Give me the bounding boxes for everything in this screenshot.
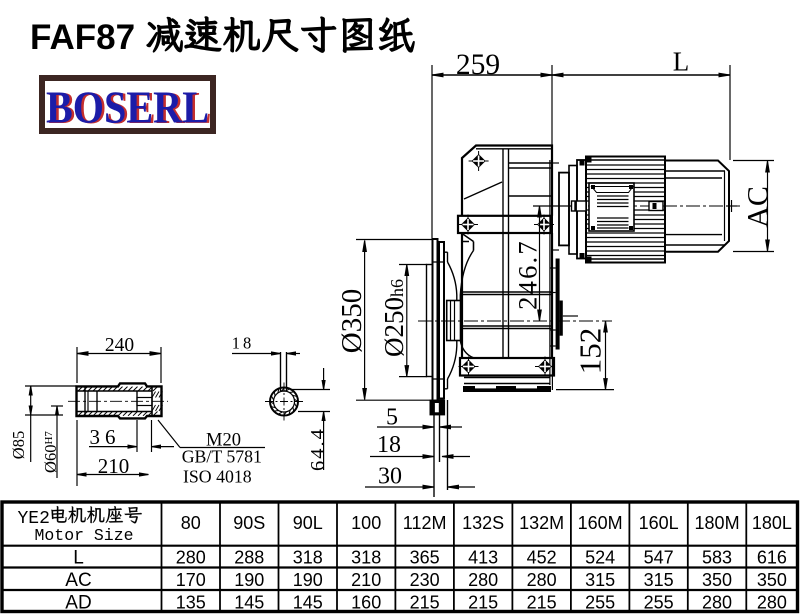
svg-text:80: 80 [181,513,201,533]
svg-text:AC: AC [65,570,91,591]
svg-text:90L: 90L [293,513,323,533]
svg-text:280: 280 [468,570,498,590]
svg-text:152: 152 [573,328,608,375]
svg-text:160M: 160M [578,513,623,533]
svg-text:64.4: 64.4 [307,427,329,471]
svg-text:Ø85: Ø85 [9,431,28,459]
svg-text:Ø350: Ø350 [336,289,368,353]
svg-text:145: 145 [293,593,323,613]
svg-text:255: 255 [585,593,615,613]
svg-text:L: L [673,47,690,77]
svg-text:132M: 132M [519,513,564,533]
svg-text:180L: 180L [752,513,792,533]
svg-text:135: 135 [176,593,206,613]
svg-text:FAF87: FAF87 [30,18,135,57]
svg-text:288: 288 [234,548,264,568]
svg-text:259: 259 [456,49,500,81]
svg-text:90S: 90S [233,513,265,533]
svg-text:145: 145 [234,593,264,613]
svg-text:318: 318 [293,548,323,568]
svg-text:30: 30 [378,464,402,490]
svg-text:170: 170 [176,570,206,590]
svg-text:210: 210 [98,454,130,478]
svg-text:210: 210 [351,570,381,590]
svg-text:BOSERL: BOSERL [46,83,209,133]
svg-text:AC: AC [742,186,775,228]
svg-text:GB/T 5781: GB/T 5781 [182,447,262,467]
svg-text:132S: 132S [462,513,504,533]
svg-text:215: 215 [410,593,440,613]
svg-text:AD: AD [65,593,91,614]
svg-text:215: 215 [468,593,498,613]
svg-text:L: L [73,548,84,569]
svg-text:190: 190 [234,570,264,590]
svg-text:ISO 4018: ISO 4018 [183,467,252,487]
svg-text:583: 583 [702,548,732,568]
svg-text:190: 190 [293,570,323,590]
svg-text:280: 280 [176,548,206,568]
svg-text:246.7: 246.7 [513,239,543,310]
svg-text:315: 315 [585,570,615,590]
svg-text:616: 616 [757,548,787,568]
svg-text:160: 160 [351,593,381,613]
svg-text:365: 365 [410,548,440,568]
svg-text:547: 547 [644,548,674,568]
svg-text:215: 215 [527,593,557,613]
svg-text:18: 18 [377,432,401,458]
svg-text:180M: 180M [695,513,740,533]
svg-text:318: 318 [351,548,381,568]
svg-text:18: 18 [232,334,255,353]
svg-text:280: 280 [527,570,557,590]
svg-text:5: 5 [386,405,398,431]
svg-text:452: 452 [527,548,557,568]
svg-text:36: 36 [90,425,121,449]
svg-text:Motor Size: Motor Size [34,526,133,545]
svg-text:112M: 112M [403,513,447,533]
svg-text:315: 315 [644,570,674,590]
svg-text:280: 280 [757,593,787,613]
svg-text:255: 255 [644,593,674,613]
svg-text:160L: 160L [639,513,679,533]
svg-text:350: 350 [757,570,787,590]
svg-text:280: 280 [702,593,732,613]
svg-text:100: 100 [351,513,381,533]
svg-text:240: 240 [105,335,134,356]
svg-text:524: 524 [585,548,615,568]
svg-text:230: 230 [410,570,440,590]
svg-text:413: 413 [468,548,498,568]
svg-text:350: 350 [702,570,732,590]
